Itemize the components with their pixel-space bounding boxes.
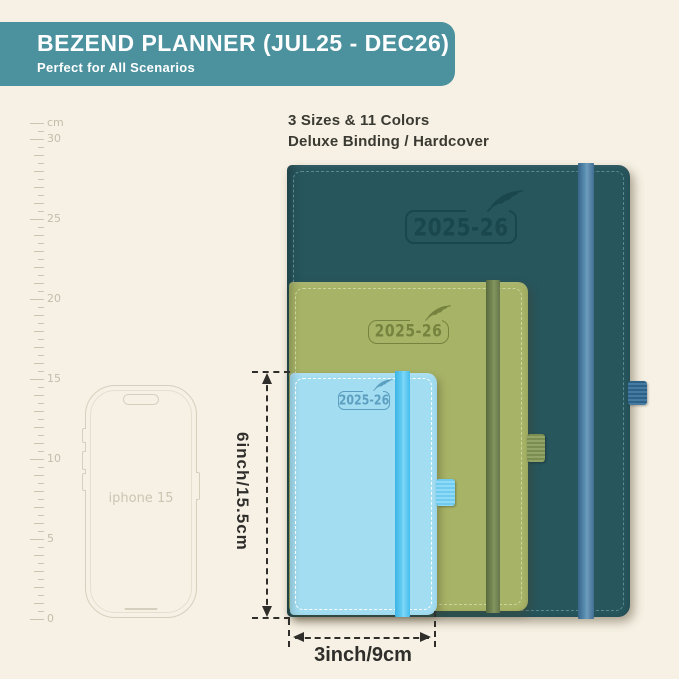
stitching xyxy=(295,378,432,610)
iphone-label: iphone 15 xyxy=(86,491,196,506)
header-banner: BEZEND PLANNER (JUL25 - DEC26) Perfect f… xyxy=(0,22,455,86)
height-dimension-label: 6inch/15.5cm xyxy=(232,432,252,551)
cover-logo: 2025-26 xyxy=(405,210,517,244)
ruler-ticks xyxy=(30,123,44,620)
product-showcase: BEZEND PLANNER (JUL25 - DEC26) Perfect f… xyxy=(0,0,679,679)
cover-logo: 2025-26 xyxy=(368,320,449,344)
ruler-label: 10 xyxy=(47,451,61,467)
feather-icon xyxy=(425,305,451,321)
side-button xyxy=(196,472,200,500)
tagline-line2: Deluxe Binding / Hardcover xyxy=(288,131,489,152)
elastic-band xyxy=(486,280,500,613)
planner-small: 2025-26 xyxy=(290,373,437,615)
page-subtitle: Perfect for All Scenarios xyxy=(37,60,455,75)
dynamic-island xyxy=(123,394,159,405)
ruler-label: 30 xyxy=(47,131,61,147)
pen-loop xyxy=(436,479,455,506)
iphone-outline: iphone 15 xyxy=(85,385,197,618)
volume-down-button xyxy=(82,473,86,491)
feather-icon xyxy=(487,190,523,212)
volume-up-button xyxy=(82,451,86,470)
cover-logo: 2025-26 xyxy=(338,391,390,410)
arrowhead-left xyxy=(293,632,304,642)
tagline: 3 Sizes & 11 Colors Deluxe Binding / Har… xyxy=(288,110,489,152)
tagline-line1: 3 Sizes & 11 Colors xyxy=(288,110,489,131)
bottom-port xyxy=(125,608,158,610)
width-extension-line-right xyxy=(434,611,436,647)
year-label: 2025-26 xyxy=(339,393,390,408)
arrowhead-down xyxy=(262,606,272,617)
ruler-label: 15 xyxy=(47,371,61,387)
width-dimension-label: 3inch/9cm xyxy=(297,644,429,667)
page-title: BEZEND PLANNER (JUL25 - DEC26) xyxy=(37,30,455,57)
elastic-band xyxy=(578,163,594,619)
ruler-label: 5 xyxy=(47,531,54,547)
pen-loop xyxy=(527,434,545,462)
height-extension-line-bottom xyxy=(252,617,290,619)
elastic-band xyxy=(395,371,410,617)
ruler-label: 0 xyxy=(47,611,54,627)
ruler-unit-label: cm xyxy=(47,115,64,131)
year-label: 2025-26 xyxy=(413,213,508,241)
mute-switch xyxy=(82,428,86,443)
feather-icon xyxy=(373,379,393,391)
ruler-label: 25 xyxy=(47,211,61,227)
height-dimension-line xyxy=(266,375,268,615)
pen-loop xyxy=(628,381,647,405)
ruler: cm 302520151050 xyxy=(30,123,90,623)
width-dimension-line xyxy=(295,637,429,639)
arrowhead-right xyxy=(420,632,431,642)
year-label: 2025-26 xyxy=(375,323,443,342)
arrowhead-up xyxy=(262,373,272,384)
width-extension-line-left xyxy=(288,619,290,647)
ruler-label: 20 xyxy=(47,291,61,307)
